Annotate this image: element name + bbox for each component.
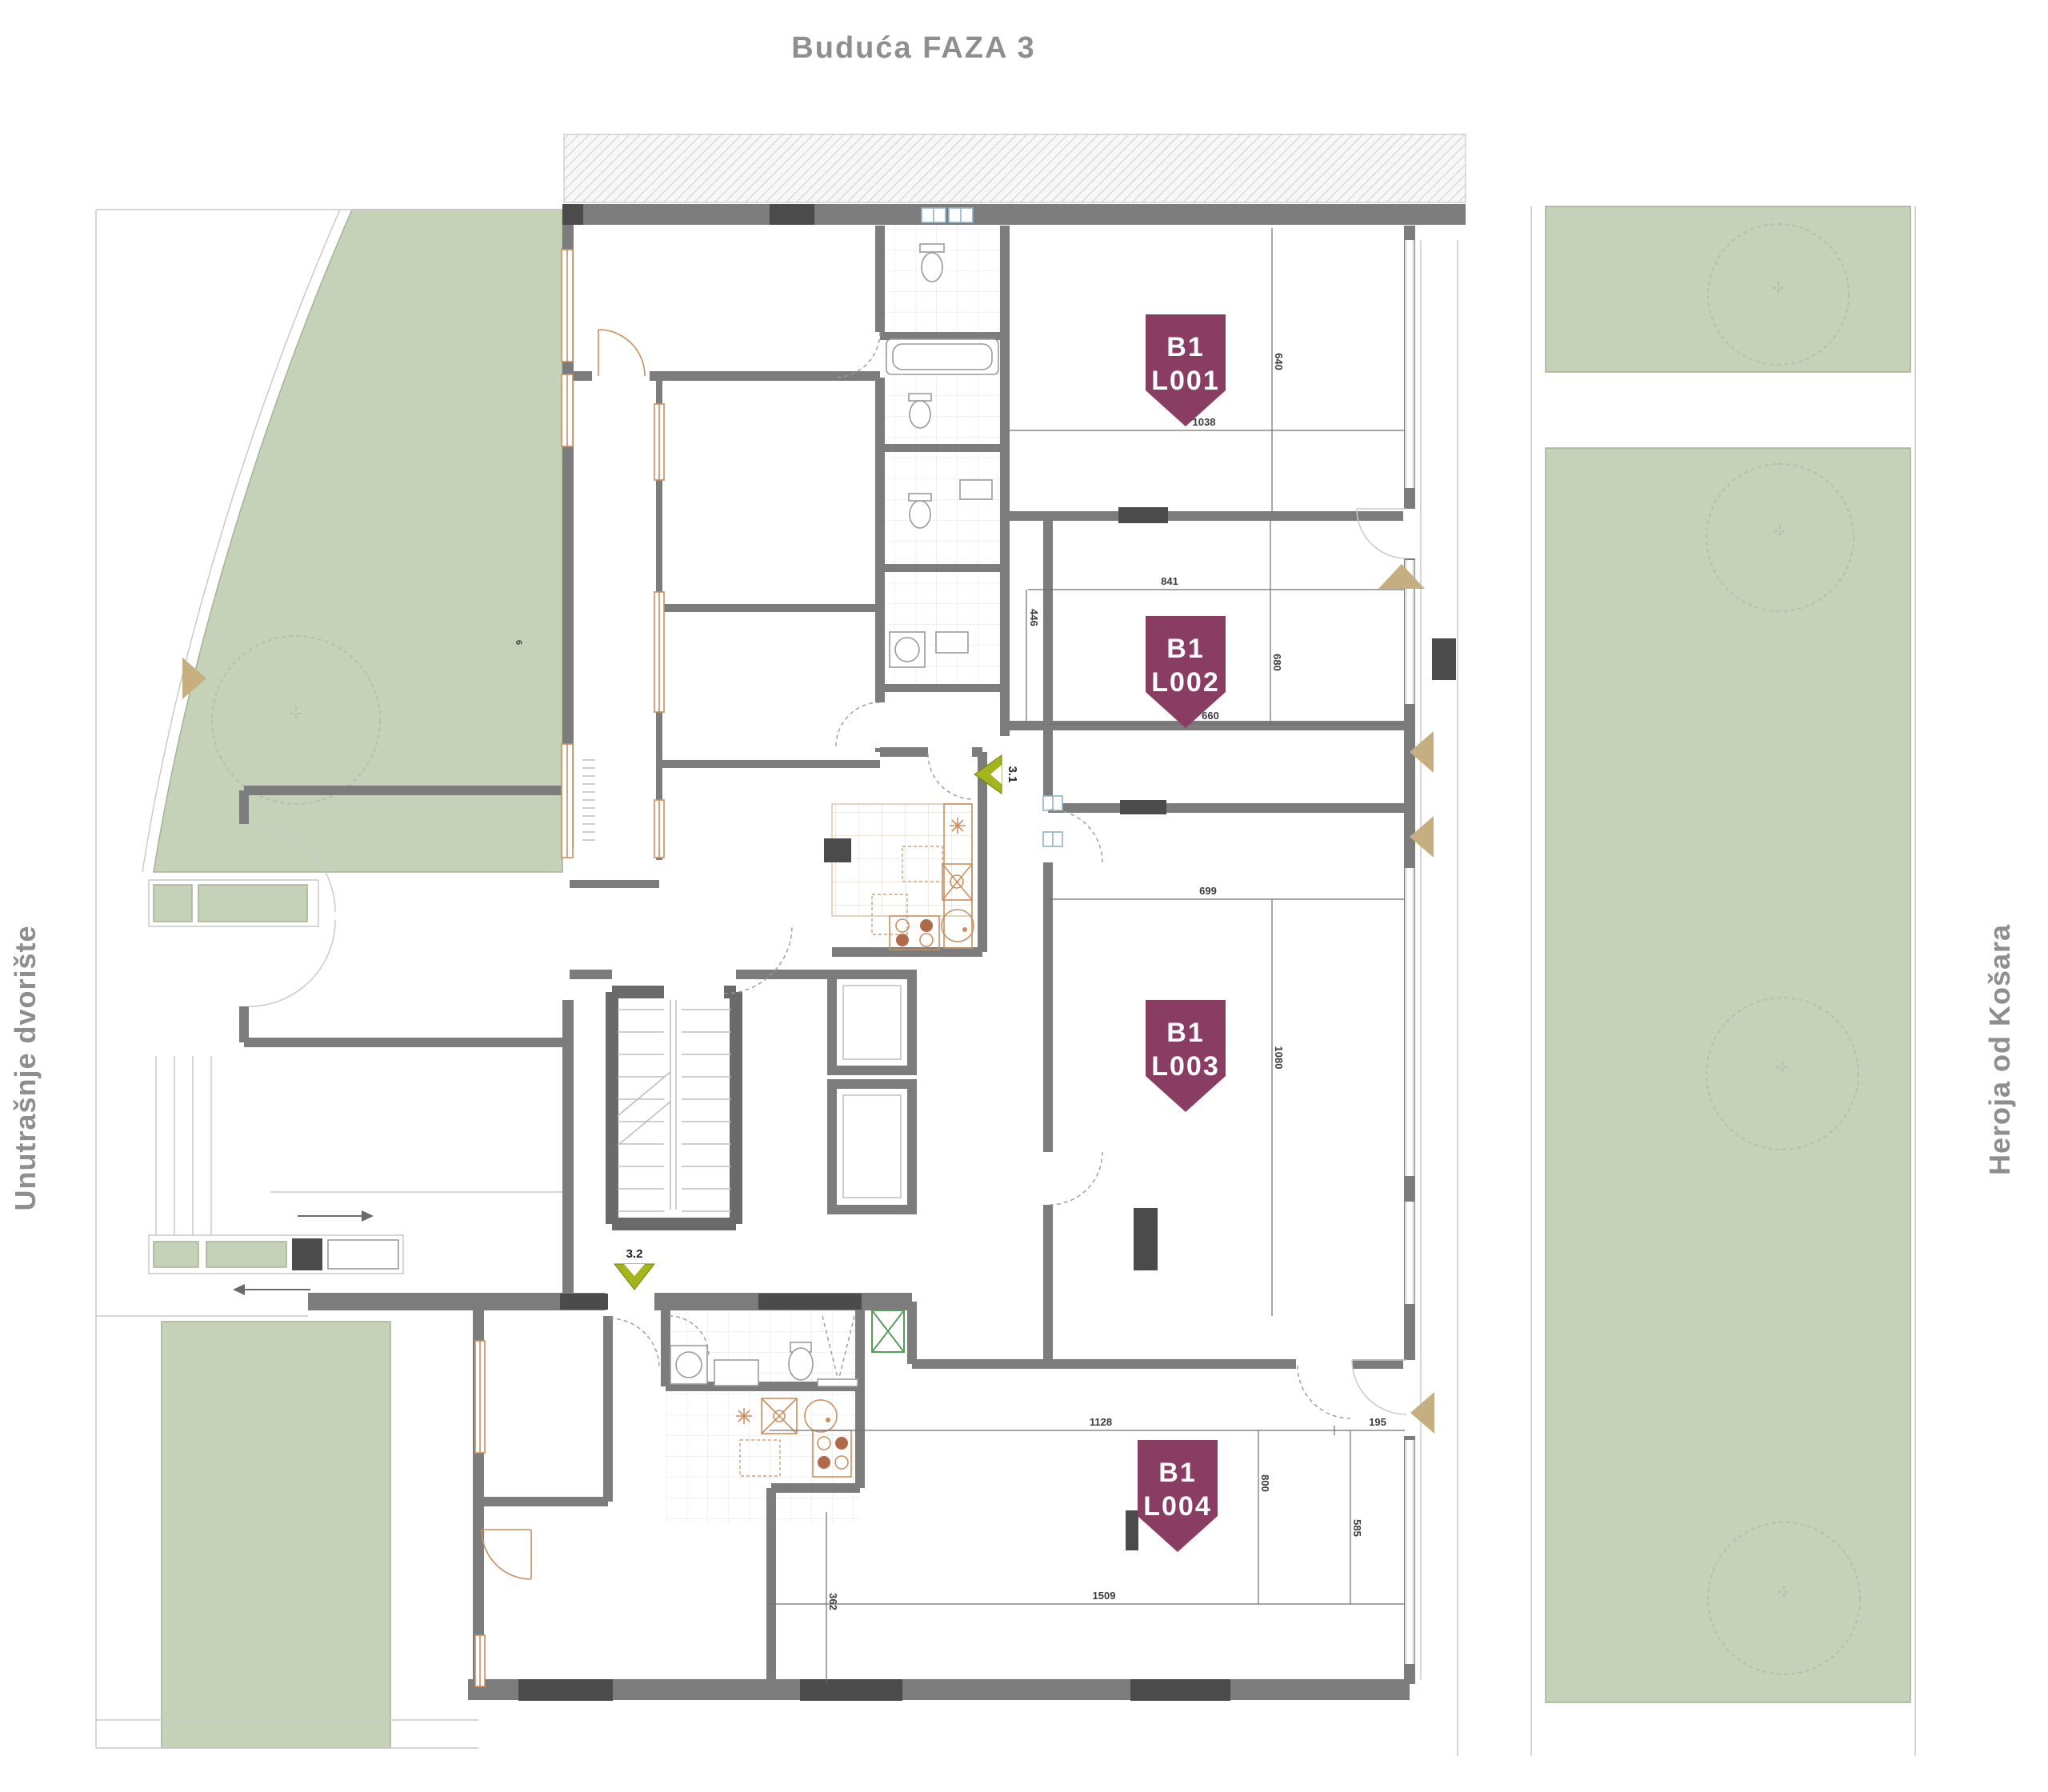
- dim-l004-bottom: 1509: [1093, 1590, 1116, 1602]
- badge-label-l004: L004: [1143, 1491, 1212, 1522]
- dim-l002-right: 680: [1271, 654, 1283, 671]
- badge-building-l002: B1: [1166, 634, 1204, 664]
- street-label-left: Unutrašnje dvorište: [9, 925, 42, 1210]
- access-marker-3-2-label: 3.2: [626, 1247, 643, 1261]
- dim-l002-left: 446: [1028, 609, 1040, 626]
- dim-l004-left: 362: [827, 1593, 839, 1610]
- badge-label-l001: L001: [1151, 366, 1220, 396]
- dim-l001-height: 640: [1273, 353, 1285, 370]
- dim-l003-right: 1080: [1273, 1046, 1285, 1070]
- badge-building-l004: B1: [1158, 1458, 1196, 1488]
- badge-building-l001: B1: [1166, 332, 1204, 362]
- green-area-label: 6: [514, 640, 523, 645]
- dim-l004-right: 585: [1351, 1519, 1363, 1537]
- badge-label-l002: L002: [1151, 667, 1220, 698]
- access-marker-3-1-label: 3.1: [1006, 766, 1019, 783]
- dim-l003-width: 699: [1199, 885, 1217, 897]
- badge-label-l003: L003: [1151, 1051, 1220, 1082]
- dim-l004-top: 1128: [1090, 1416, 1112, 1428]
- dim-l002-bottom: 660: [1202, 710, 1219, 722]
- dim-l004-mid: 800: [1259, 1474, 1271, 1492]
- window-band-right: [1405, 240, 1414, 1664]
- badge-building-l003: B1: [1166, 1018, 1204, 1048]
- street-label-right: Heroja od Košara: [1983, 924, 2016, 1175]
- door-gap-right-top: [1403, 509, 1416, 558]
- dim-l001-width: 1038: [1193, 416, 1216, 428]
- dim-l004-top-right: 195: [1369, 1416, 1386, 1428]
- door-gap-right-bottom: [1403, 1360, 1416, 1436]
- future-phase-hatch: [564, 134, 1466, 202]
- dim-l002-width: 841: [1161, 575, 1178, 587]
- site-plan: 3.1 3.2 1038 640 841 446 680 660 699 108…: [0, 0, 2048, 1792]
- future-phase-label: Buduća FAZA 3: [791, 31, 1035, 65]
